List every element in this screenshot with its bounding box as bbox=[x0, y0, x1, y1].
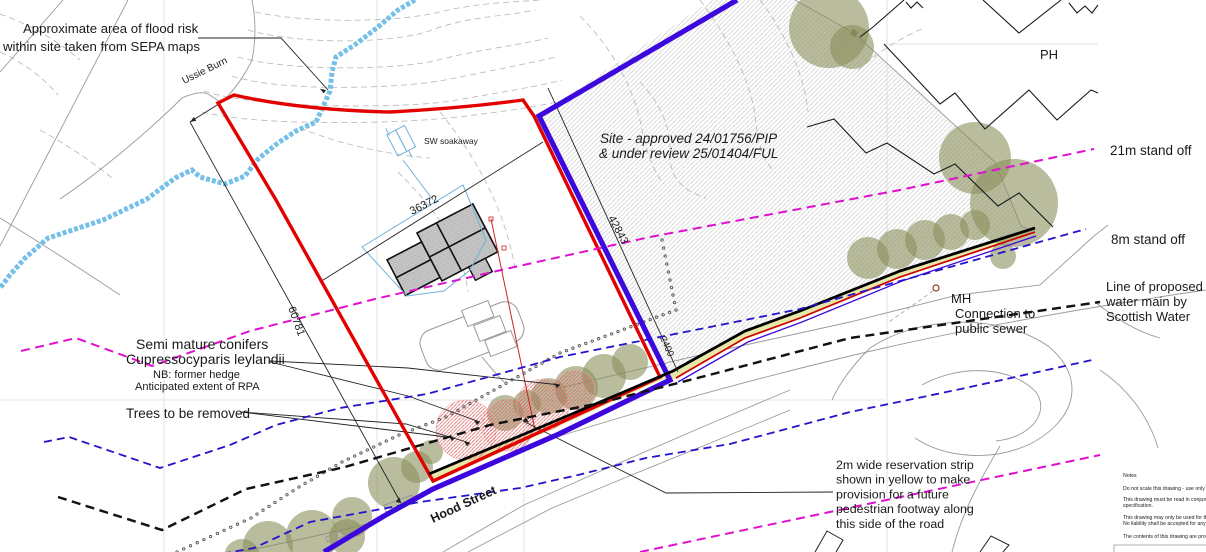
svg-text:within site taken from SEPA ma: within site taken from SEPA maps bbox=[2, 39, 200, 54]
svg-text:Line of proposed: Line of proposed bbox=[1106, 279, 1203, 294]
svg-text:provision for a future: provision for a future bbox=[836, 487, 949, 501]
svg-text:MH: MH bbox=[951, 291, 971, 306]
svg-text:public sewer: public sewer bbox=[955, 321, 1028, 336]
svg-text:& under review 25/01404/FUL: & under review 25/01404/FUL bbox=[599, 146, 778, 161]
svg-text:The contents of this drawing a: The contents of this drawing are prote bbox=[1123, 534, 1206, 540]
svg-text:specification.: specification. bbox=[1123, 503, 1153, 509]
svg-text:21m stand off: 21m stand off bbox=[1110, 143, 1192, 158]
svg-text:Cupressocyparis leylandii: Cupressocyparis leylandii bbox=[126, 351, 285, 367]
svg-text:Approximate area of flood risk: Approximate area of flood risk bbox=[23, 21, 199, 36]
svg-text:Notes: Notes bbox=[1123, 473, 1137, 479]
svg-text:shown in yellow to make: shown in yellow to make bbox=[836, 473, 970, 487]
svg-text:pedestrian footway along: pedestrian footway along bbox=[836, 502, 974, 516]
svg-text:PH: PH bbox=[1040, 47, 1058, 62]
svg-text:NB: former hedge: NB: former hedge bbox=[153, 369, 240, 381]
svg-text:8m stand off: 8m stand off bbox=[1111, 232, 1185, 247]
svg-text:Ussie Burn: Ussie Burn bbox=[180, 55, 229, 86]
svg-text:Connection to: Connection to bbox=[955, 306, 1035, 321]
svg-text:2m wide reservation strip: 2m wide reservation strip bbox=[836, 458, 974, 472]
svg-text:Scottish Water: Scottish Water bbox=[1106, 309, 1191, 324]
svg-text:No liability shall be accepted: No liability shall be accepted for any c bbox=[1123, 521, 1206, 527]
svg-text:SW soakaway: SW soakaway bbox=[424, 136, 479, 146]
svg-text:Do not scale this drawing - us: Do not scale this drawing - use only fig bbox=[1123, 486, 1206, 492]
svg-text:Semi mature conifers: Semi mature conifers bbox=[136, 336, 268, 352]
svg-text:Site - approved 24/01756/PIP: Site - approved 24/01756/PIP bbox=[600, 131, 777, 146]
svg-text:Anticipated extent of RPA: Anticipated extent of RPA bbox=[135, 381, 260, 393]
svg-text:Trees to be removed: Trees to be removed bbox=[126, 406, 250, 421]
svg-text:water main by: water main by bbox=[1105, 294, 1187, 309]
svg-text:36372: 36372 bbox=[408, 193, 441, 218]
svg-text:this side of the road: this side of the road bbox=[836, 517, 944, 531]
